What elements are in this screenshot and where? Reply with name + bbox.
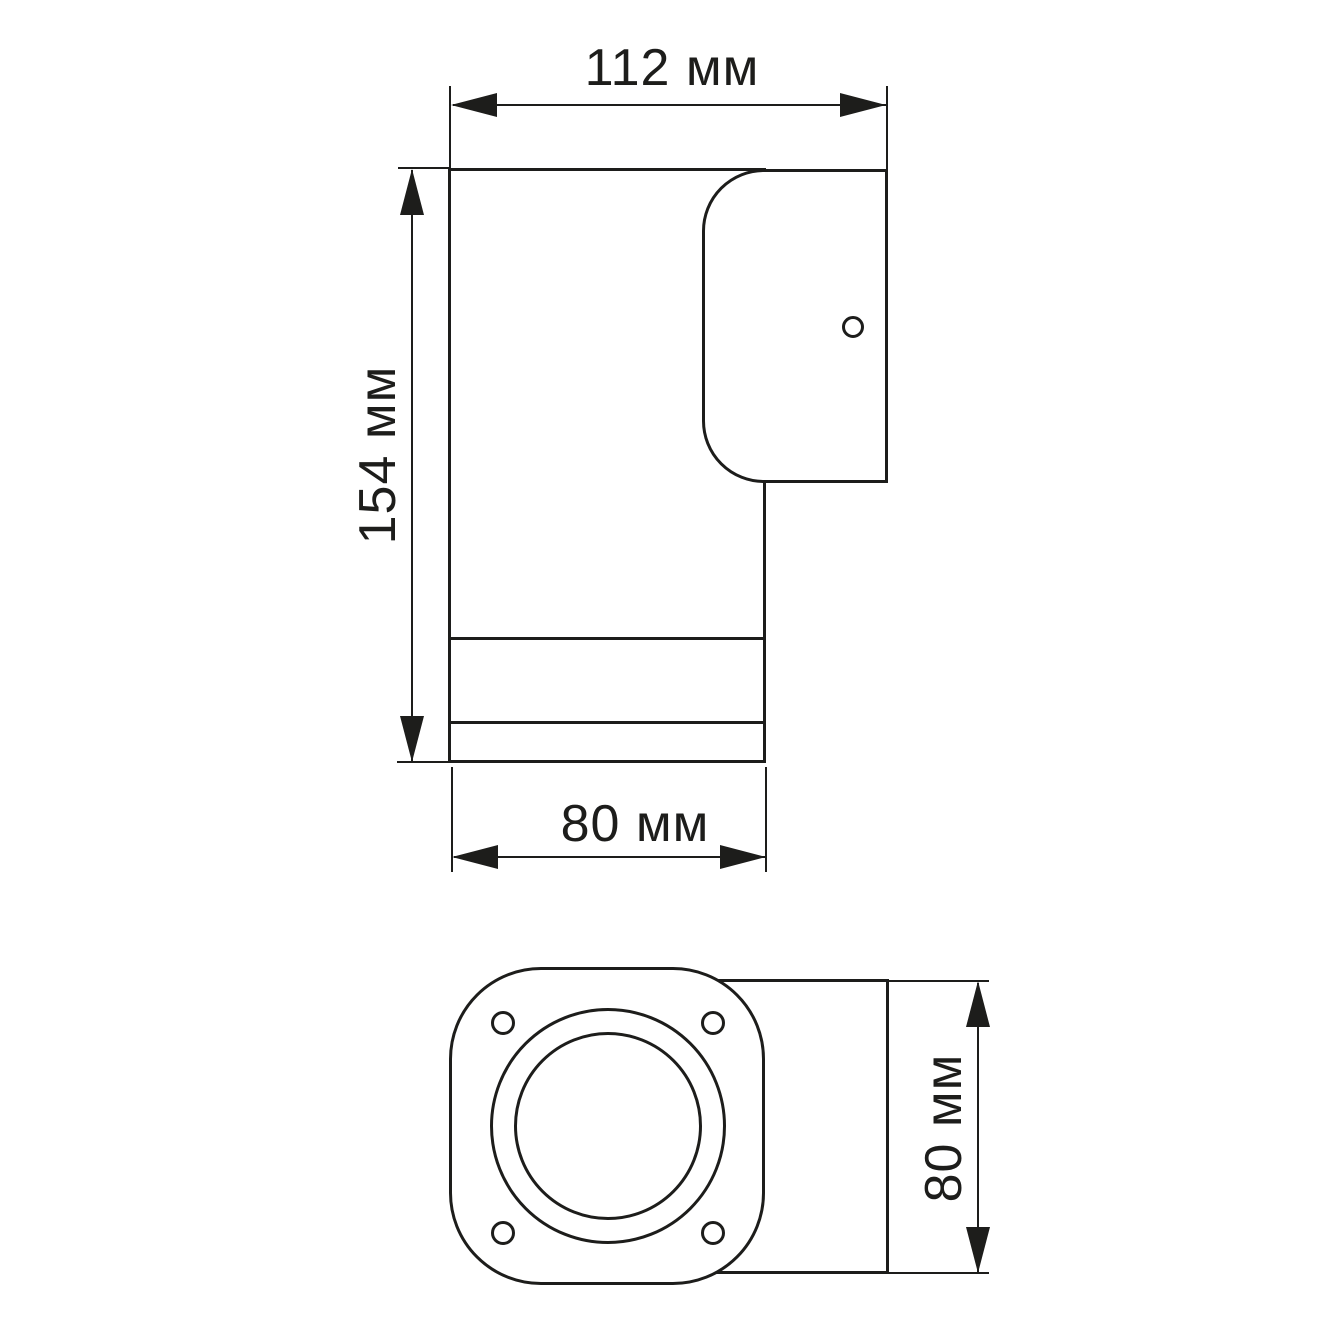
flange-screw-hole-top-right <box>701 1011 725 1035</box>
bracket-screw-hole <box>842 316 864 338</box>
wall-plate-top-line <box>712 979 889 982</box>
flange-screw-hole-top-left <box>491 1011 515 1035</box>
aperture-inner-circle <box>514 1032 702 1220</box>
arrowhead-left-icon <box>451 93 497 117</box>
dimension-label-height-left: 154 мм <box>352 295 404 615</box>
arrowhead-right-icon <box>840 93 886 117</box>
cylinder-band-line-upper <box>451 637 763 640</box>
dimension-label-width-top: 112 мм <box>454 42 890 94</box>
wall-plate-bottom-line <box>712 1271 889 1274</box>
wall-plate-right-edge <box>886 979 889 1274</box>
dimension-label-width-bottom: 80 мм <box>478 798 792 850</box>
arrowhead-down-icon <box>400 716 424 762</box>
dimension-label-depth-right: 80 мм <box>918 968 970 1288</box>
arrowhead-up-icon <box>400 169 424 215</box>
extension-line <box>886 86 888 170</box>
flange-screw-hole-bottom-right <box>701 1221 725 1245</box>
dimension-line <box>453 104 886 106</box>
flange-screw-hole-bottom-left <box>491 1221 515 1245</box>
drawing-canvas: 112 мм 154 мм 80 мм <box>0 0 1340 1340</box>
dimension-line <box>411 170 413 762</box>
cylinder-band-line-lower <box>451 721 763 724</box>
